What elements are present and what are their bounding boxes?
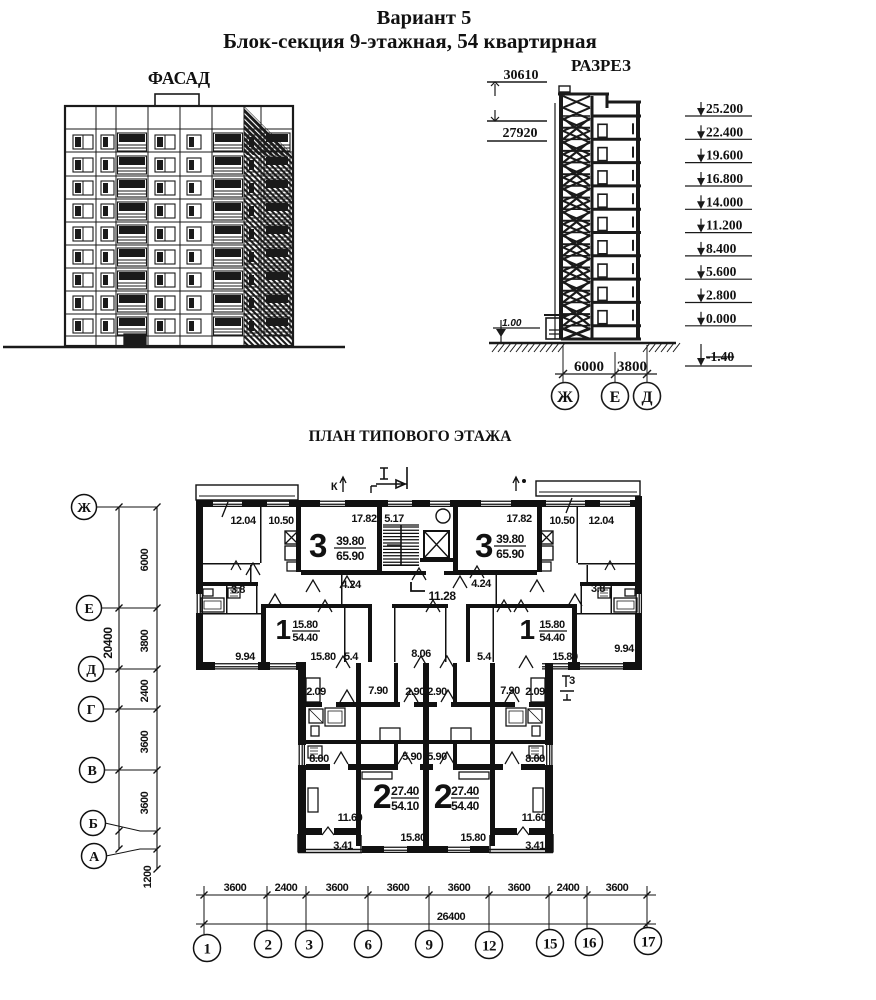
svg-text:2: 2 [434,778,452,816]
svg-text:К: К [331,481,338,493]
svg-text:5.90: 5.90 [402,751,422,763]
svg-text:Ж: Ж [557,389,573,406]
svg-text:-1.40: -1.40 [706,349,734,364]
svg-text:54.40: 54.40 [292,632,318,644]
svg-text:1: 1 [519,614,534,645]
svg-text:Б: Б [89,817,98,832]
svg-text:9.94: 9.94 [235,651,256,663]
svg-text:3600: 3600 [448,882,471,894]
svg-text:30610: 30610 [504,68,539,83]
svg-text:ФАСАД: ФАСАД [148,68,210,88]
svg-text:10.50: 10.50 [549,515,575,527]
svg-text:3.8: 3.8 [231,584,245,596]
svg-text:20400: 20400 [101,627,115,659]
svg-text:7.90: 7.90 [368,685,388,697]
svg-text:Г: Г [87,703,96,718]
svg-text:2.90: 2.90 [427,686,447,698]
svg-text:2.09: 2.09 [525,686,545,698]
svg-text:6000: 6000 [574,359,604,375]
svg-text:16.800: 16.800 [706,171,743,186]
svg-text:3.41: 3.41 [525,840,545,852]
svg-text:2.800: 2.800 [706,288,737,303]
svg-text:54.10: 54.10 [391,799,420,813]
svg-text:3: 3 [309,527,327,564]
svg-text:17.82: 17.82 [506,513,532,525]
svg-text:4.24: 4.24 [341,579,362,591]
svg-text:22.400: 22.400 [706,124,743,139]
svg-text:3800: 3800 [617,359,647,375]
svg-text:В: В [88,764,97,779]
svg-text:2.90: 2.90 [405,686,425,698]
svg-text:2400: 2400 [139,679,151,702]
svg-text:17.82: 17.82 [351,513,377,525]
svg-text:5.17: 5.17 [384,513,404,525]
svg-text:0.000: 0.000 [706,311,737,326]
svg-text:Д: Д [86,663,96,678]
svg-text:27.40: 27.40 [391,784,420,798]
svg-text:19.600: 19.600 [706,148,743,163]
svg-text:14.000: 14.000 [706,194,743,209]
svg-text:Блок-секция 9-этажная, 54 квар: Блок-секция 9-этажная, 54 квартирная [223,29,597,53]
svg-text:1: 1 [275,614,290,645]
svg-text:2: 2 [373,778,391,816]
svg-text:5.90: 5.90 [427,751,447,763]
svg-text:1200: 1200 [142,865,154,888]
svg-text:8.400: 8.400 [706,241,737,256]
svg-text:15: 15 [543,936,557,952]
svg-text:3600: 3600 [606,882,629,894]
svg-text:11.60: 11.60 [522,812,547,824]
svg-text:3600: 3600 [326,882,349,894]
svg-text:5.4: 5.4 [477,651,492,663]
svg-text:15.80: 15.80 [460,832,486,844]
svg-text:ПЛАН ТИПОВОГО ЭТАЖА: ПЛАН ТИПОВОГО ЭТАЖА [309,428,513,445]
svg-text:9: 9 [425,937,432,953]
svg-text:65.90: 65.90 [336,549,365,563]
svg-text:5.600: 5.600 [706,264,737,279]
svg-text:26400: 26400 [437,911,466,923]
svg-text:3600: 3600 [508,882,531,894]
svg-text:25.200: 25.200 [706,101,743,116]
svg-text:2.09: 2.09 [306,686,326,698]
svg-text:11.28: 11.28 [428,589,456,603]
svg-text:10.50: 10.50 [268,515,294,527]
svg-text:15.80: 15.80 [292,619,318,631]
svg-text:РАЗРЕЗ: РАЗРЕЗ [571,56,631,75]
svg-text:Д: Д [641,389,652,406]
svg-text:39.80: 39.80 [496,532,525,546]
svg-text:3600: 3600 [224,882,247,894]
svg-text:8.06: 8.06 [411,648,431,660]
svg-text:3600: 3600 [139,730,151,753]
svg-text:2400: 2400 [275,882,298,894]
svg-text:11.200: 11.200 [706,218,743,233]
svg-text:Ж: Ж [77,501,91,516]
svg-text:3600: 3600 [387,882,410,894]
svg-text:3.8: 3.8 [591,583,605,595]
svg-text:15.80: 15.80 [310,651,336,663]
svg-text:11.60: 11.60 [338,812,363,824]
svg-text:2400: 2400 [557,882,580,894]
svg-text:3.41: 3.41 [333,840,353,852]
svg-text:1: 1 [203,941,210,957]
svg-text:3600: 3600 [139,791,151,814]
svg-text:6: 6 [364,937,372,953]
svg-text:54.40: 54.40 [539,632,565,644]
svg-text:2: 2 [264,937,271,953]
svg-text:27920: 27920 [503,126,538,141]
svg-text:15.80: 15.80 [539,619,565,631]
svg-text:6000: 6000 [139,548,151,571]
svg-text:3: 3 [475,527,493,564]
svg-text:12.04: 12.04 [230,515,257,527]
svg-text:12.04: 12.04 [588,515,615,527]
svg-text:65.90: 65.90 [496,547,525,561]
svg-text:3800: 3800 [139,629,151,652]
svg-text:16: 16 [582,935,597,951]
svg-text:39.80: 39.80 [336,534,365,548]
svg-text:4.24: 4.24 [471,578,492,590]
svg-text:А: А [89,850,100,865]
svg-text:5.4: 5.4 [344,651,359,663]
svg-text:12: 12 [482,938,496,954]
svg-text:54.40: 54.40 [451,799,480,813]
svg-text:15.80: 15.80 [400,832,426,844]
svg-text:9.94: 9.94 [614,643,635,655]
svg-text:Е: Е [610,389,621,406]
svg-text:15.80: 15.80 [552,651,578,663]
svg-text:Е: Е [85,602,94,617]
svg-text:17: 17 [641,934,656,950]
svg-text:3: 3 [569,675,575,687]
svg-text:3: 3 [305,937,312,953]
svg-text:8.00: 8.00 [525,753,545,765]
svg-text:7.90: 7.90 [500,685,520,697]
svg-text:Вариант 5: Вариант 5 [377,7,472,29]
svg-text:8.00: 8.00 [309,753,329,765]
svg-text:27.40: 27.40 [451,784,480,798]
